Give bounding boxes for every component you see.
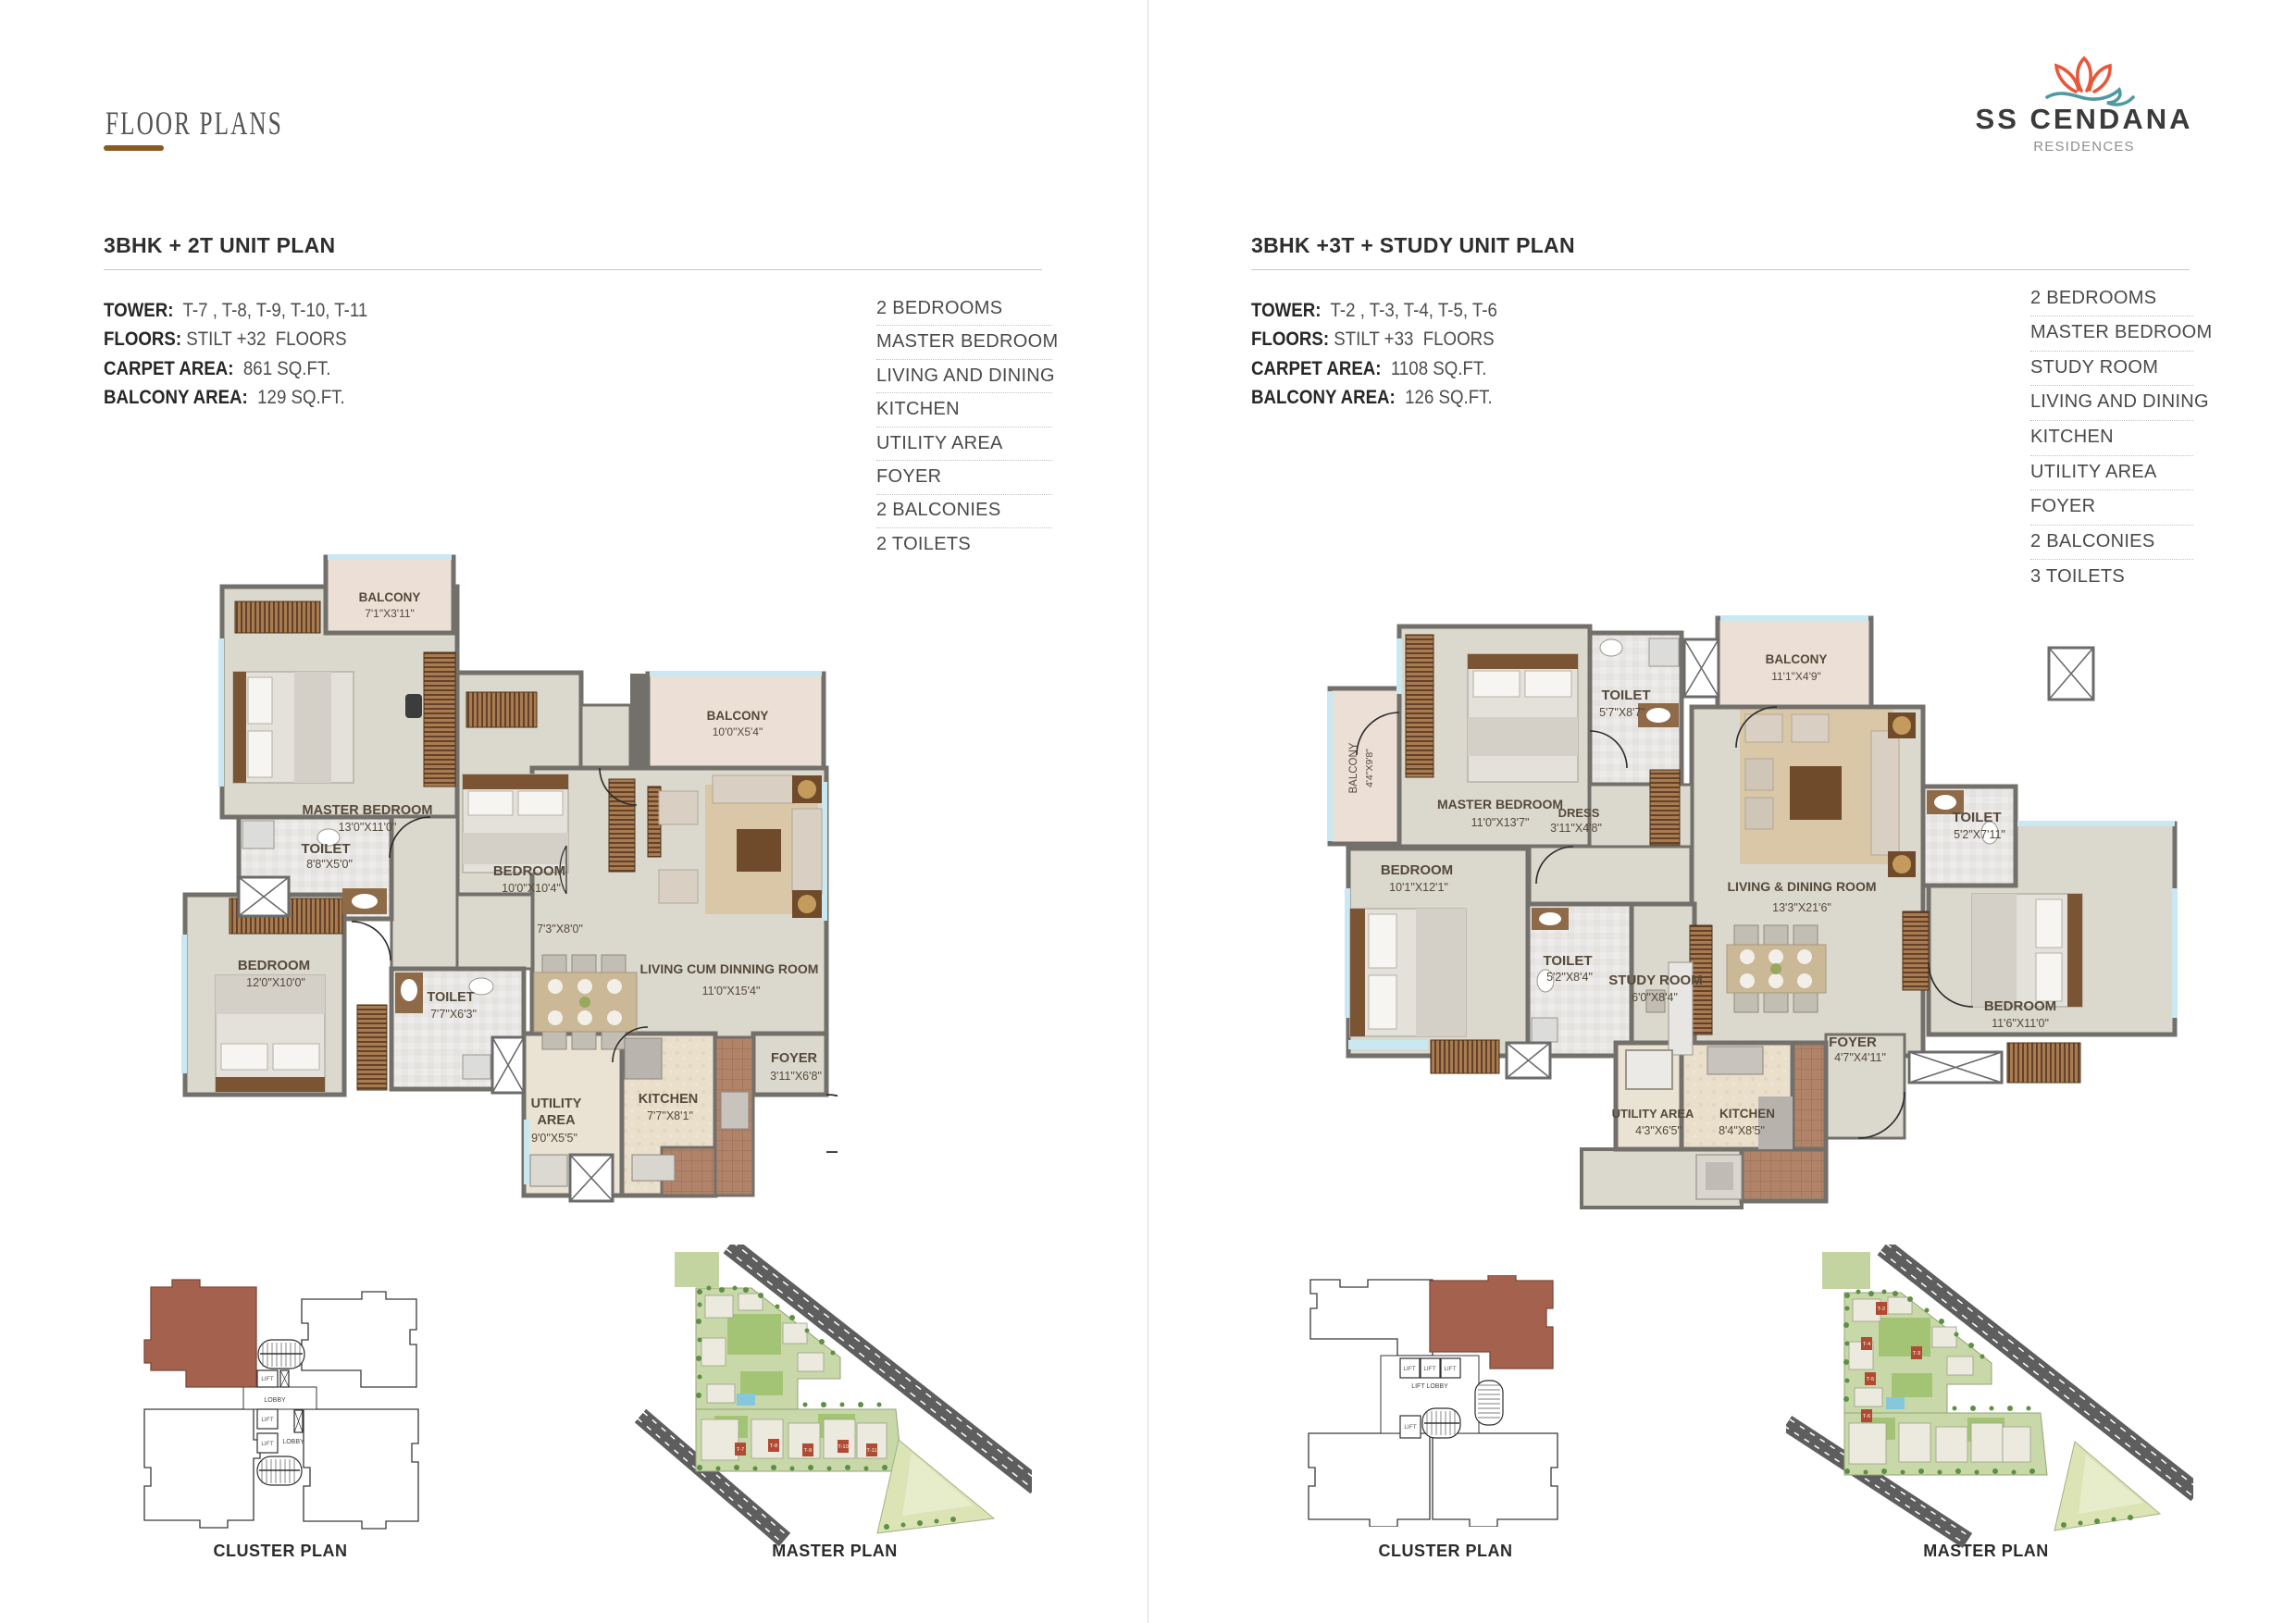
- svg-text:LOBBY: LOBBY: [264, 1397, 286, 1404]
- svg-text:TOILET: TOILET: [301, 841, 350, 857]
- svg-text:4'3"X6'5": 4'3"X6'5": [1635, 1124, 1682, 1137]
- svg-text:T-2: T-2: [1878, 1307, 1885, 1312]
- svg-text:BALCONY: BALCONY: [1766, 652, 1828, 666]
- svg-text:TOILET: TOILET: [1601, 688, 1650, 703]
- svg-text:10'1"X12'1": 10'1"X12'1": [1389, 881, 1448, 894]
- svg-text:8'4"X8'5": 8'4"X8'5": [1719, 1124, 1765, 1137]
- svg-text:FOYER: FOYER: [1829, 1035, 1877, 1050]
- svg-text:BEDROOM: BEDROOM: [238, 958, 310, 973]
- svg-text:BEDROOM: BEDROOM: [493, 863, 565, 879]
- svg-text:10'0"X10'4": 10'0"X10'4": [502, 882, 561, 895]
- svg-text:11'0"X15'4": 11'0"X15'4": [702, 985, 761, 997]
- svg-text:5'2"X8'4": 5'2"X8'4": [1546, 971, 1593, 984]
- svg-text:TOILET: TOILET: [427, 990, 474, 1005]
- svg-text:5'7"X8'7": 5'7"X8'7": [1599, 706, 1645, 719]
- svg-text:LIFT LOBBY: LIFT LOBBY: [1411, 1383, 1448, 1390]
- svg-text:LIFT: LIFT: [261, 1376, 273, 1382]
- svg-text:T-8: T-8: [770, 1443, 777, 1449]
- svg-text:4'7"X4'11": 4'7"X4'11": [1834, 1051, 1886, 1064]
- svg-text:7'7"X8'1": 7'7"X8'1": [647, 1109, 693, 1122]
- svg-text:11'0"X13'7": 11'0"X13'7": [1471, 816, 1530, 829]
- svg-text:LOBBY: LOBBY: [282, 1439, 304, 1445]
- svg-text:STUDY ROOM: STUDY ROOM: [1608, 973, 1702, 988]
- svg-text:T-10: T-10: [838, 1444, 849, 1450]
- svg-text:BEDROOM: BEDROOM: [1984, 998, 2056, 1014]
- svg-text:BALCONY: BALCONY: [1348, 742, 1359, 793]
- svg-text:T-5: T-5: [1867, 1377, 1874, 1382]
- svg-text:T-6: T-6: [1863, 1414, 1870, 1419]
- svg-text:12'0"X10'0": 12'0"X10'0": [246, 976, 305, 989]
- svg-text:8'8"X5'0": 8'8"X5'0": [306, 858, 353, 871]
- svg-text:10'0"X5'4": 10'0"X5'4": [713, 725, 763, 738]
- svg-text:7'1"X3'11": 7'1"X3'11": [365, 607, 415, 620]
- svg-text:T-3: T-3: [1913, 1351, 1920, 1357]
- svg-text:LIVING & DINING ROOM: LIVING & DINING ROOM: [1728, 879, 1877, 894]
- svg-text:BALCONY: BALCONY: [359, 590, 421, 604]
- svg-text:DRESS: DRESS: [1558, 806, 1600, 820]
- svg-text:LIFT: LIFT: [261, 1417, 273, 1423]
- svg-text:LIFT: LIFT: [261, 1441, 273, 1447]
- svg-text:3'11"X6'8": 3'11"X6'8": [770, 1070, 822, 1083]
- svg-text:13'3"X21'6": 13'3"X21'6": [1772, 901, 1831, 914]
- svg-text:7'3"X8'0": 7'3"X8'0": [537, 923, 583, 935]
- svg-text:T-9: T-9: [804, 1448, 812, 1454]
- svg-text:9'0"X5'5": 9'0"X5'5": [531, 1132, 577, 1145]
- svg-text:T-11: T-11: [866, 1448, 876, 1454]
- svg-text:LIFT: LIFT: [1404, 1424, 1416, 1431]
- svg-text:MASTER BEDROOM: MASTER BEDROOM: [303, 803, 433, 818]
- svg-text:T-7: T-7: [737, 1447, 744, 1453]
- svg-text:MASTER BEDROOM: MASTER BEDROOM: [1437, 797, 1563, 811]
- svg-text:4'4"X9'8": 4'4"X9'8": [1364, 749, 1375, 787]
- svg-text:7'7"X6'3": 7'7"X6'3": [430, 1008, 477, 1021]
- svg-text:LIFT: LIFT: [1444, 1366, 1456, 1372]
- svg-text:FOYER: FOYER: [771, 1051, 817, 1066]
- svg-text:LIVING CUM DINNING ROOM: LIVING CUM DINNING ROOM: [640, 961, 819, 976]
- svg-text:LIFT: LIFT: [1403, 1366, 1415, 1372]
- svg-text:5'2"X7'11": 5'2"X7'11": [1954, 828, 2005, 841]
- svg-text:T-4: T-4: [1863, 1342, 1871, 1347]
- svg-text:SS CENDANA: SS CENDANA: [1976, 103, 2193, 135]
- svg-text:TOILET: TOILET: [1952, 810, 2001, 825]
- svg-text:KITCHEN: KITCHEN: [1719, 1107, 1775, 1121]
- svg-text:LIFT: LIFT: [1423, 1366, 1435, 1372]
- svg-text:AREA: AREA: [537, 1113, 576, 1128]
- svg-text:11'1"X4'9": 11'1"X4'9": [1771, 670, 1821, 683]
- svg-text:KITCHEN: KITCHEN: [639, 1092, 698, 1107]
- svg-text:RESIDENCES: RESIDENCES: [2033, 139, 2135, 155]
- svg-text:BEDROOM: BEDROOM: [1381, 862, 1453, 878]
- svg-text:TOILET: TOILET: [1543, 953, 1592, 969]
- svg-text:11'6"X11'0": 11'6"X11'0": [1992, 1017, 2049, 1030]
- svg-text:6'0"X8'4": 6'0"X8'4": [1632, 991, 1678, 1004]
- svg-text:3'11"X4'8": 3'11"X4'8": [1550, 822, 1602, 835]
- svg-text:UTILITY: UTILITY: [531, 1096, 582, 1111]
- svg-text:UTILITY AREA: UTILITY AREA: [1612, 1107, 1694, 1121]
- svg-text:13'0"X11'0": 13'0"X11'0": [339, 821, 397, 834]
- svg-text:BALCONY: BALCONY: [707, 709, 769, 723]
